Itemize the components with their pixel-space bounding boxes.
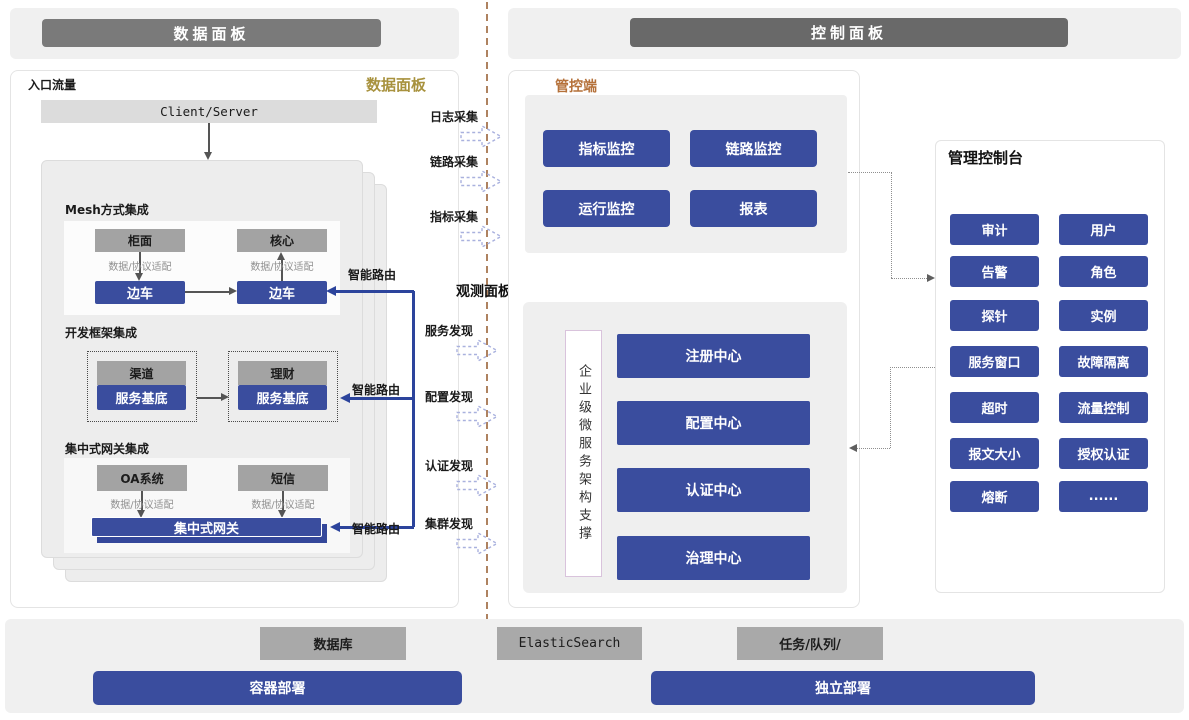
route-arrow-2-icon — [340, 393, 350, 403]
console-audit-button: 审计 — [950, 214, 1039, 245]
architecture-diagram: 数据面板 控制面板 入口流量 数据面板 Client/Server Mesh方式… — [0, 0, 1189, 720]
task-queue-box: 任务/队列/ — [737, 627, 883, 660]
entry-traffic-label: 入口流量 — [28, 76, 76, 93]
gateway-app-left: OA系统 — [97, 465, 187, 491]
gateway-app-right: 短信 — [238, 465, 328, 491]
service-base-right: 服务基底 — [238, 385, 327, 410]
registry-center-bar: 注册中心 — [617, 334, 810, 378]
mesh-section-title: Mesh方式集成 — [65, 201, 149, 218]
framework-link-arrow-icon — [221, 393, 229, 401]
governance-center-bar: 治理中心 — [617, 536, 810, 580]
flow-arrow-icon — [459, 223, 503, 250]
mesh-app-left: 柜面 — [95, 229, 185, 252]
client-down-arrow-line — [208, 123, 210, 152]
data-plane-banner: 数据面板 — [42, 19, 381, 47]
sidecar-link-line — [185, 291, 231, 293]
flow-arrow-icon — [455, 337, 499, 364]
framework-link-line — [197, 397, 223, 399]
console-authorization-button: 授权认证 — [1059, 438, 1148, 469]
connector-console-to-observe-v — [890, 367, 891, 448]
microservice-support-label: 企业级微服务架构支撑 — [565, 330, 602, 577]
flow-arrow-icon — [455, 530, 499, 557]
gateway-bar: 集中式网关 — [91, 517, 322, 537]
console-probe-button: 探针 — [950, 300, 1039, 331]
route-arrow-3-icon — [330, 522, 340, 532]
container-deploy-bar: 容器部署 — [93, 671, 462, 705]
auth-center-bar: 认证中心 — [617, 468, 810, 512]
console-flow-control-button: 流量控制 — [1059, 392, 1148, 423]
control-plane-banner: 控制面板 — [630, 18, 1068, 47]
sidecar-left: 边车 — [95, 281, 185, 304]
client-server-bar: Client/Server — [41, 100, 377, 123]
console-role-button: 角色 — [1059, 256, 1148, 287]
standalone-deploy-bar: 独立部署 — [651, 671, 1035, 705]
sidecar-link-arrow-icon — [229, 287, 237, 295]
mesh-arrow-down-icon — [135, 273, 143, 281]
monitor-trace-button: 链路监控 — [690, 130, 817, 167]
framework-section-title: 开发框架集成 — [65, 324, 137, 341]
elasticsearch-box: ElasticSearch — [497, 627, 642, 660]
mesh-app-right: 核心 — [237, 229, 327, 252]
console-service-window-button: 服务窗口 — [950, 346, 1039, 377]
connector-arrow-left-icon — [849, 444, 857, 452]
connector-monitor-to-console-v — [891, 172, 892, 278]
connector-monitor-to-console-h2 — [891, 278, 929, 279]
framework-app-left: 渠道 — [97, 361, 186, 385]
route-trunk-line — [412, 291, 415, 527]
connector-arrow-right-icon — [927, 274, 935, 282]
monitor-metric-button: 指标监控 — [543, 130, 670, 167]
mesh-adapter-left: 数据/协议适配 — [95, 258, 185, 273]
console-alert-button: 告警 — [950, 256, 1039, 287]
service-base-left: 服务基底 — [97, 385, 186, 410]
console-more-button: ...... — [1059, 481, 1148, 512]
gateway-adapter-right: 数据/协议适配 — [238, 496, 328, 511]
console-timeout-button: 超时 — [950, 392, 1039, 423]
monitor-runtime-button: 运行监控 — [543, 190, 670, 227]
console-fault-isolation-button: 故障隔离 — [1059, 346, 1148, 377]
console-circuit-break-button: 熔断 — [950, 481, 1039, 512]
route-arm-1 — [334, 290, 414, 293]
monitor-report-button: 报表 — [690, 190, 817, 227]
connector-monitor-to-console — [848, 172, 892, 173]
config-center-bar: 配置中心 — [617, 401, 810, 445]
console-instance-button: 实例 — [1059, 300, 1148, 331]
flow-arrow-icon — [459, 123, 503, 150]
client-down-arrow-icon — [204, 152, 212, 160]
console-message-size-button: 报文大小 — [950, 438, 1039, 469]
connector-console-to-observe-h2 — [857, 448, 890, 449]
gateway-section-title: 集中式网关集成 — [65, 440, 149, 457]
route-label-2: 智能路由 — [352, 381, 400, 398]
flow-arrow-icon — [455, 403, 499, 430]
mesh-adapter-right: 数据/协议适配 — [237, 258, 327, 273]
data-panel-tag: 数据面板 — [366, 74, 426, 95]
route-label-3: 智能路由 — [352, 520, 400, 537]
flow-arrow-icon — [455, 472, 499, 499]
management-console-title: 管理控制台 — [948, 147, 1023, 168]
control-plane-tag: 管控端 — [555, 76, 597, 96]
sidecar-right: 边车 — [237, 281, 327, 304]
gateway-adapter-left: 数据/协议适配 — [97, 496, 187, 511]
database-box: 数据库 — [260, 627, 406, 660]
observe-panel-title: 观测面板 — [456, 281, 512, 301]
monitor-card — [525, 95, 847, 253]
framework-app-right: 理财 — [238, 361, 327, 385]
flow-arrow-icon — [459, 168, 503, 195]
route-arrow-1-icon — [326, 286, 336, 296]
connector-console-to-observe — [890, 367, 935, 368]
route-label-1: 智能路由 — [348, 266, 396, 283]
console-user-button: 用户 — [1059, 214, 1148, 245]
